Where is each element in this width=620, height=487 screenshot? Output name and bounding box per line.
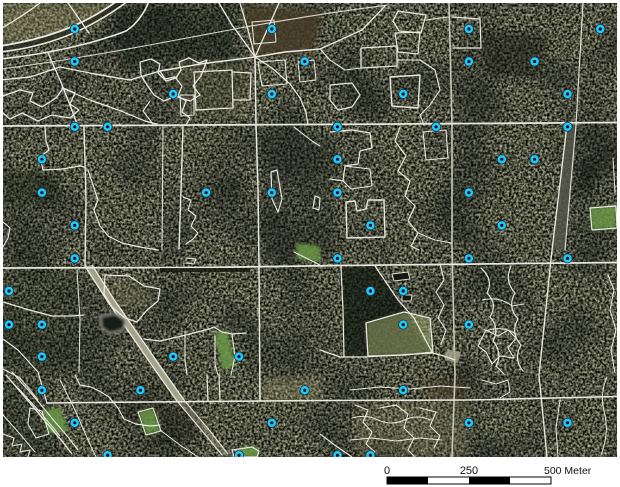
svg-text:500 Meter: 500 Meter (544, 465, 592, 477)
svg-text:0: 0 (384, 465, 390, 477)
svg-text:250: 250 (460, 465, 478, 477)
